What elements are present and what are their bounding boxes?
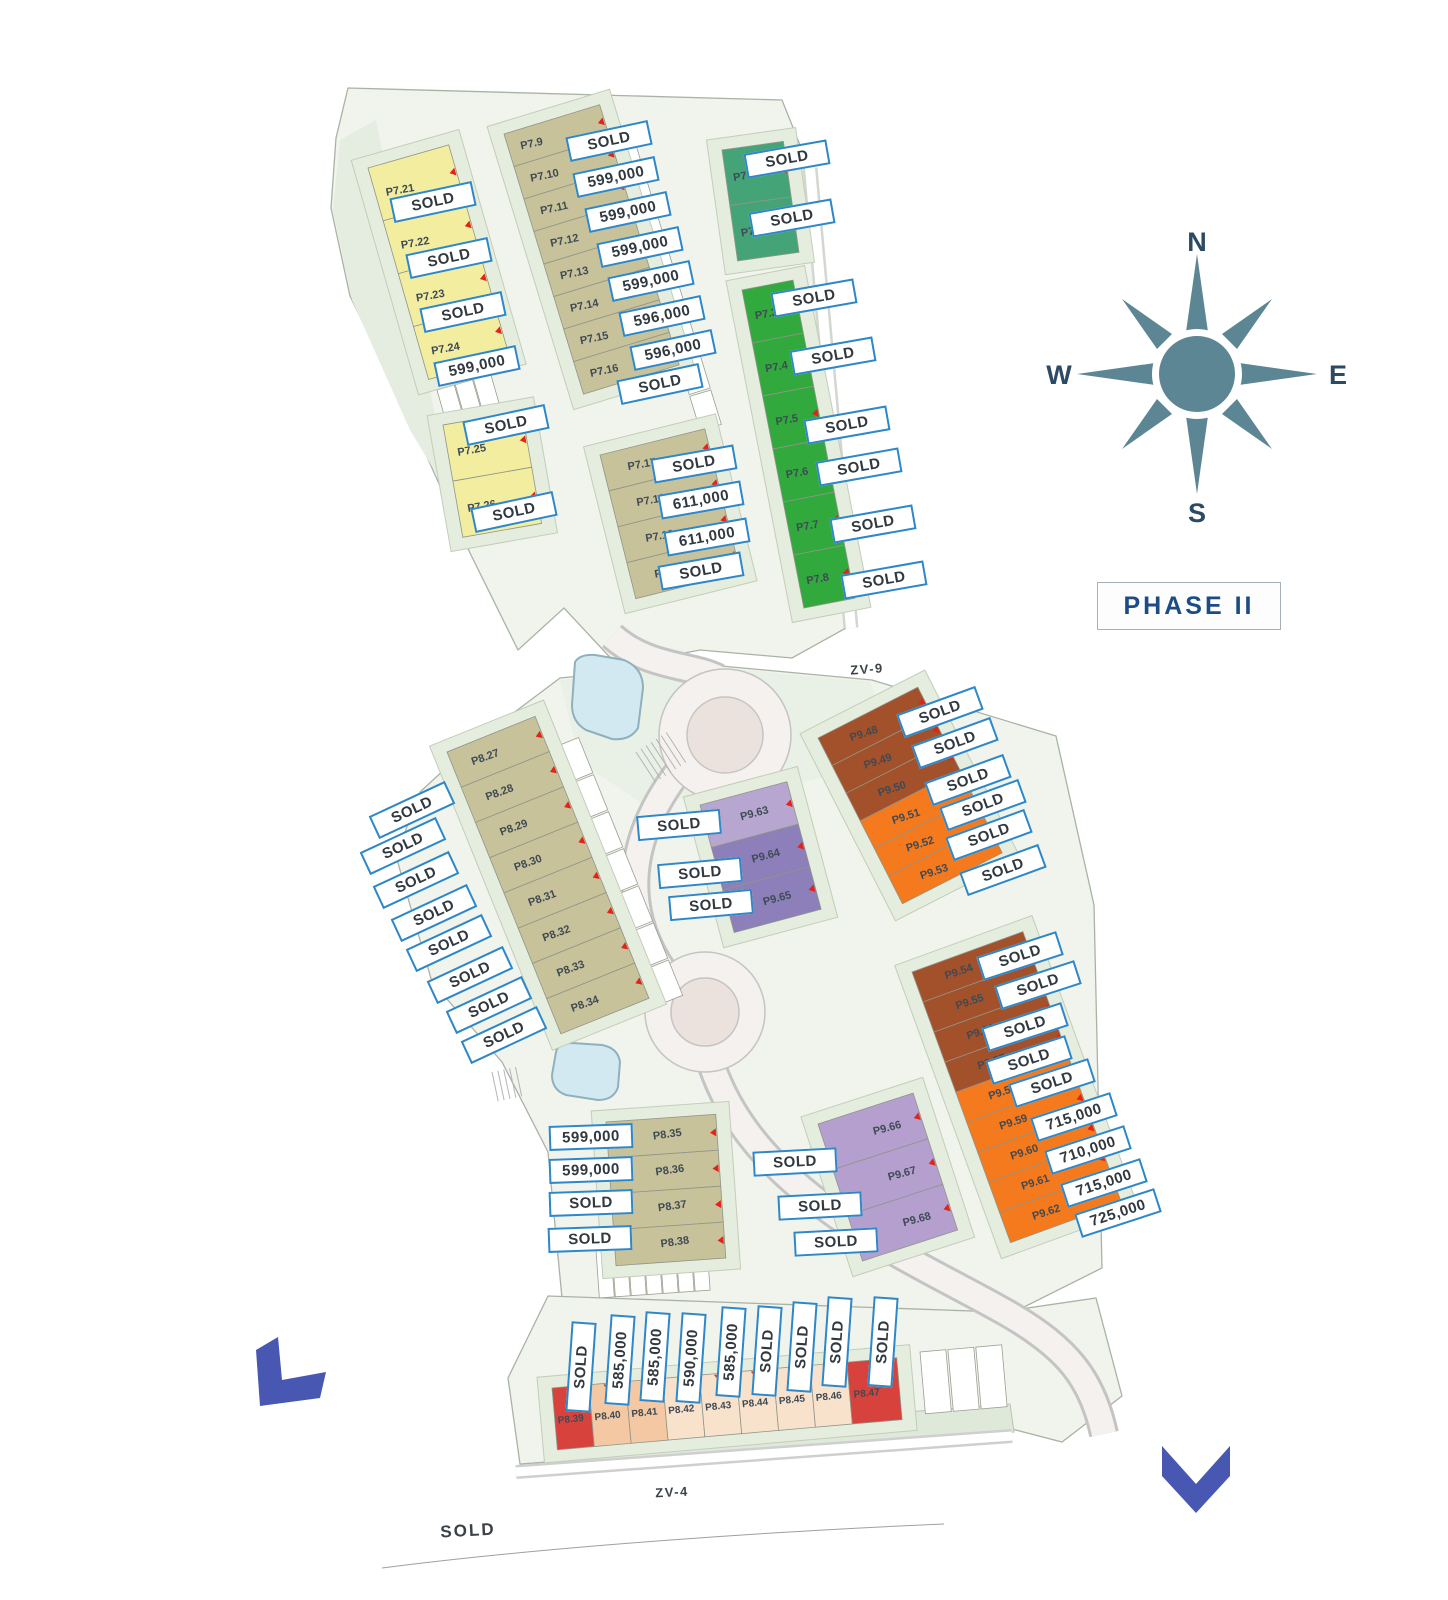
compass-s: S xyxy=(1188,498,1206,528)
garage-row-right xyxy=(920,1345,1007,1414)
phase-badge: PHASE II xyxy=(1097,582,1281,630)
compass-rose: N E S W xyxy=(1046,227,1347,528)
compass-e: E xyxy=(1329,360,1347,390)
pool-lower xyxy=(552,1043,620,1100)
compass-disc xyxy=(1159,336,1235,412)
map-canvas: P7.21P7.22P7.23P7.24P7.25P7.26P7.9P7.10P… xyxy=(0,0,1448,1600)
site-boundary-bottom xyxy=(382,1524,944,1568)
site-plan: P7.21P7.22P7.23P7.24P7.25P7.26P7.9P7.10P… xyxy=(0,0,1448,1600)
plot-group-p7-yellow-lower: P7.25P7.26 xyxy=(427,397,557,552)
arrow-down-icon xyxy=(1162,1446,1230,1513)
compass-w: W xyxy=(1046,360,1072,390)
arrow-southwest-icon xyxy=(256,1337,326,1406)
pool-upper xyxy=(572,655,643,739)
compass-n: N xyxy=(1187,227,1207,257)
plot-group-p7-teal: P7.1P7.2 xyxy=(706,128,814,275)
plot-group-p8-olive-lower: P8.35P8.36P8.37P8.38 xyxy=(591,1101,740,1278)
phase-label: PHASE II xyxy=(1124,592,1255,621)
